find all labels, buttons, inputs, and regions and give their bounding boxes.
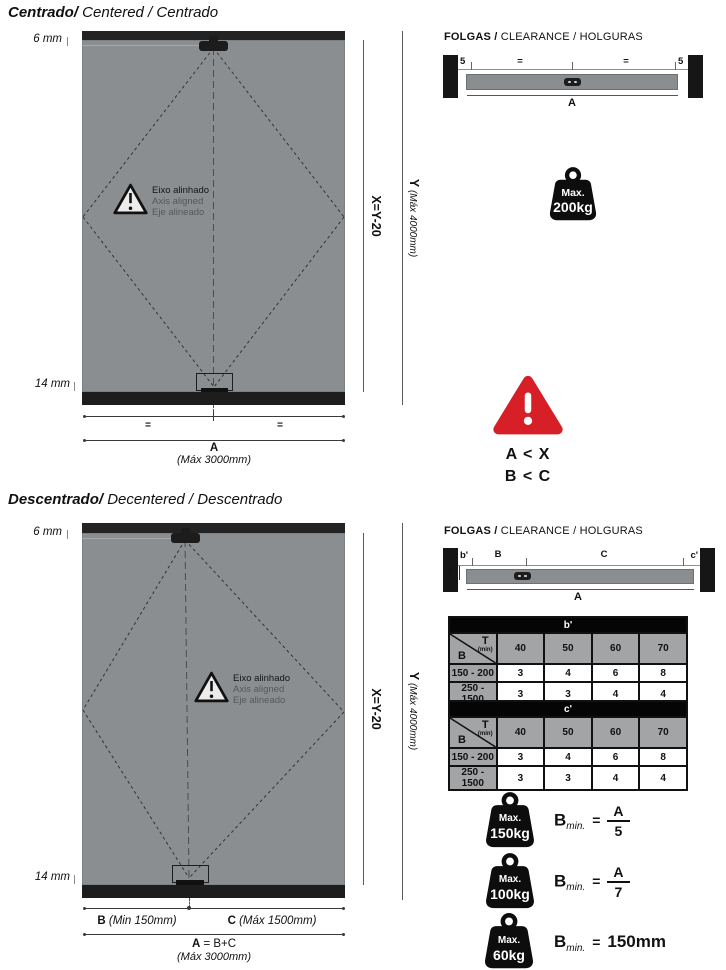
- equal-split-dim-line: [84, 416, 344, 417]
- table-b-col-3: 70: [639, 633, 687, 664]
- a-total-eq: = B+C: [200, 938, 236, 950]
- formula-row-60kg: Max. 60kg Bmin.=150mm: [480, 912, 726, 970]
- clearance-a-label-2: A: [548, 591, 608, 603]
- dim-y-note-2: (Máx 4000mm): [407, 680, 418, 750]
- table-c-corner: T (min) B: [449, 717, 497, 748]
- dim-y-note: (Máx 4000mm): [407, 187, 418, 257]
- table-b-col-2: 60: [592, 633, 640, 664]
- a-total-dim-line: [84, 934, 344, 935]
- b-prime-label: b': [460, 550, 468, 561]
- corner-min: (min): [478, 731, 493, 737]
- dim-x-line-2: [363, 533, 364, 885]
- cell: 3: [497, 766, 545, 790]
- width-a-dim-line: [84, 440, 344, 441]
- axis-note-pt: Eixo alinhado: [152, 185, 209, 196]
- b-seg-label: B: [483, 549, 513, 560]
- corner-t: T: [482, 635, 489, 647]
- top-gap-tick: [67, 37, 68, 46]
- clearance-a-label: A: [542, 97, 602, 109]
- cell: 4: [544, 664, 592, 682]
- fraction: A7: [607, 864, 629, 900]
- fraction-num: A: [607, 864, 629, 883]
- formula-result: 150mm: [607, 932, 666, 951]
- table-b-corner: T (min) B: [449, 633, 497, 664]
- axis-warning-icon-2: [193, 670, 230, 704]
- c-prime-label: c': [684, 550, 698, 561]
- b-prime-tick: [472, 558, 473, 566]
- table-c-col-2: 60: [592, 717, 640, 748]
- formula-eq: =: [592, 812, 600, 828]
- formula-eq: =: [592, 934, 600, 950]
- equal-left-label: =: [128, 420, 168, 431]
- dim-x-label-2: X=Y-20: [367, 688, 385, 729]
- door-bar-top-view-2: [466, 569, 694, 584]
- dim-y-line-2: [402, 523, 403, 900]
- clearance-top-line: [458, 69, 688, 70]
- table-c-title: c': [449, 701, 687, 717]
- gap-right-tick: [675, 62, 676, 70]
- max-weight-100-icon: Max. 100kg: [482, 853, 538, 911]
- section-title-centered: Centrado/ Centered / Centrado: [8, 4, 218, 21]
- table-c-col-1: 50: [544, 717, 592, 748]
- clearance-table-b-prime: b' T (min) B 40 50 60 70 150 - 200 3 4 6…: [448, 616, 688, 707]
- equal-right-label: =: [260, 420, 300, 431]
- left-jamb-block: [443, 55, 458, 98]
- clearance-top-line-2: [458, 565, 700, 566]
- formula-b: B: [554, 871, 566, 890]
- swing-diamond-lines: [82, 40, 345, 392]
- bottom-gap-tick-2: [74, 875, 75, 884]
- width-a-note: (Máx 3000mm): [114, 454, 314, 466]
- section-title-decentered: Descentrado/ Decentered / Descentrado: [8, 491, 282, 508]
- bc-split-dot: [187, 906, 191, 910]
- axis-note-decentered: Eixo alinhado Axis aligned Eje alineado: [233, 673, 290, 706]
- formula-bmin-150mm: Bmin.=150mm: [554, 932, 666, 952]
- max-weight-200-value: 200kg: [546, 199, 600, 215]
- equal-split-tick: [213, 411, 214, 421]
- formula-sub: min.: [566, 821, 585, 832]
- axis-note-en: Axis aligned: [152, 196, 209, 207]
- bc-tick: [526, 558, 527, 566]
- dim-b-label: B (Min 150mm): [77, 915, 197, 927]
- dim-x-text-2: X=Y-20: [369, 688, 383, 729]
- table-row: 150 - 200 3 4 6 8: [449, 748, 687, 766]
- max-weight-100-value: 100kg: [482, 886, 538, 902]
- clearance-center-tick: [572, 62, 573, 70]
- dim-c-label: C (Máx 1500mm): [212, 915, 332, 927]
- cell: 3: [497, 664, 545, 682]
- pivot-mechanism-icon: [199, 41, 228, 51]
- formula-sub: min.: [566, 943, 585, 954]
- axis-note-centered: Eixo alinhado Axis aligned Eje alineado: [152, 185, 209, 218]
- dim-x-label: X=Y-20: [367, 195, 385, 236]
- fraction-den: 7: [607, 883, 629, 900]
- door-panel-centered: [82, 40, 345, 392]
- row-label: 250 - 1500: [449, 766, 497, 790]
- table-c-col-3: 70: [639, 717, 687, 748]
- cell: 4: [592, 766, 640, 790]
- section-title-decentered-main: Descentrado/: [8, 491, 103, 508]
- c-seg-label: C: [589, 549, 619, 560]
- table-b-col-0: 40: [497, 633, 545, 664]
- door-panel-decentered: [82, 533, 345, 885]
- cell: 3: [544, 766, 592, 790]
- table-c-col-0: 40: [497, 717, 545, 748]
- section-title-decentered-rest: Decentered / Descentrado: [103, 491, 282, 508]
- a-total-note: (Máx 3000mm): [114, 951, 314, 963]
- a-total-letter: A: [192, 938, 200, 950]
- cell: 8: [639, 748, 687, 766]
- table-b-title: b': [449, 617, 687, 633]
- max-weight-60-icon: Max. 60kg: [480, 913, 538, 970]
- clearance-a-line-2: [467, 589, 694, 590]
- formula-b: B: [554, 810, 566, 829]
- fraction-den: 5: [607, 822, 629, 839]
- cell: 6: [592, 748, 640, 766]
- fraction: A5: [607, 803, 629, 839]
- cell: 4: [639, 766, 687, 790]
- right-jamb-block: [688, 55, 703, 98]
- fraction-num: A: [607, 803, 629, 822]
- dim-c-note: (Máx 1500mm): [236, 915, 317, 927]
- clearance-title-rest: CLEARANCE / HOLGURAS: [498, 31, 643, 43]
- clearance-title-centered: FOLGAS / CLEARANCE / HOLGURAS: [444, 31, 643, 43]
- t-tick: [459, 566, 460, 580]
- clearance-a-line: [467, 95, 678, 96]
- right-jamb-block-2: [700, 548, 715, 592]
- corner-min: (min): [478, 647, 493, 653]
- formula-row-150kg: Max. 150kg Bmin.=A5: [482, 791, 722, 851]
- table-row: 250 - 1500 3 3 4 4: [449, 766, 687, 790]
- formula-row-100kg: Max. 100kg Bmin.=A7: [482, 852, 722, 912]
- formula-b: B: [554, 932, 566, 951]
- dim-b-note: (Min 150mm): [106, 915, 177, 927]
- gap-right-label: 5: [678, 56, 683, 67]
- max-weight-150-value: 150kg: [482, 825, 538, 841]
- clearance-mechanism-icon-2: [514, 572, 531, 580]
- clearance-eq-right: =: [611, 56, 641, 67]
- bc-dim-line: [84, 908, 344, 909]
- clearance-mechanism-icon: [564, 78, 581, 86]
- formula-sub: min.: [566, 882, 585, 893]
- bottom-track-bar: [82, 392, 345, 405]
- table-b-col-1: 50: [544, 633, 592, 664]
- top-gap-label-2: 6 mm: [16, 526, 62, 538]
- dim-y-line: [402, 31, 403, 405]
- row-label: 150 - 200: [449, 748, 497, 766]
- page: Centrado/ Centered / Centrado 6 mm Eixo …: [0, 0, 726, 970]
- dim-c-letter: C: [228, 915, 236, 927]
- top-gap-tick-2: [67, 530, 68, 539]
- dim-y-label: Y (Máx 4000mm): [405, 179, 423, 257]
- warning-rule-1: A < X: [478, 446, 578, 464]
- axis-note-en-2: Axis aligned: [233, 684, 290, 695]
- corner-b: B: [458, 650, 466, 662]
- top-gap-label: 6 mm: [16, 33, 62, 45]
- cell: 6: [592, 664, 640, 682]
- top-track-bar-2: [82, 523, 345, 533]
- dim-y-label-2: Y (Máx 4000mm): [405, 672, 423, 750]
- dim-x-line: [363, 40, 364, 392]
- warning-triangle-icon: [492, 374, 564, 438]
- pivot-mechanism-icon-2: [171, 533, 200, 543]
- bottom-track-bar-2: [82, 885, 345, 898]
- axis-note-es: Eje alineado: [152, 207, 209, 218]
- c-prime-tick: [683, 558, 684, 566]
- max-weight-200-icon: Max. 200kg: [546, 166, 600, 224]
- table-row: 150 - 200 3 4 6 8: [449, 664, 687, 682]
- max-weight-150-label: Max.: [482, 813, 538, 824]
- max-weight-100-label: Max.: [482, 874, 538, 885]
- gap-left-label: 5: [460, 56, 465, 67]
- width-a-letter: A: [210, 442, 218, 454]
- clearance-eq-left: =: [505, 56, 535, 67]
- clearance-title-rest-2: CLEARANCE / HOLGURAS: [498, 525, 643, 537]
- warning-rule-2: B < C: [478, 468, 578, 486]
- bottom-gap-label-2: 14 mm: [16, 871, 70, 883]
- section-title-centered-main: Centrado/: [8, 4, 78, 21]
- axis-warning-icon: [112, 182, 149, 216]
- width-a-label: A: [114, 442, 314, 454]
- axis-note-pt-2: Eixo alinhado: [233, 673, 290, 684]
- cell: 4: [544, 748, 592, 766]
- dim-x-text: X=Y-20: [369, 195, 383, 236]
- clearance-title-main: FOLGAS /: [444, 31, 498, 43]
- gap-left-tick: [471, 62, 472, 70]
- corner-b: B: [458, 734, 466, 746]
- clearance-a-letter: A: [568, 97, 576, 109]
- formula-eq: =: [592, 873, 600, 889]
- a-total-label: A = B+C: [114, 938, 314, 950]
- row-label: 150 - 200: [449, 664, 497, 682]
- bottom-gap-tick: [74, 382, 75, 391]
- formula-bmin-a5: Bmin.=A5: [554, 803, 630, 839]
- swing-diamond-lines-2: [82, 533, 345, 885]
- dim-b-letter: B: [97, 915, 105, 927]
- section-title-centered-rest: Centered / Centrado: [78, 4, 218, 21]
- max-weight-150-icon: Max. 150kg: [482, 792, 538, 850]
- max-weight-60-label: Max.: [480, 935, 538, 946]
- clearance-title-decentered: FOLGAS / CLEARANCE / HOLGURAS: [444, 525, 643, 537]
- cell: 8: [639, 664, 687, 682]
- max-weight-200-label: Max.: [546, 187, 600, 199]
- t-label: T: [447, 567, 453, 578]
- panel-top-seam: [82, 45, 214, 46]
- axis-note-es-2: Eje alineado: [233, 695, 290, 706]
- clearance-table-c-prime: c' T (min) B 40 50 60 70 150 - 200 3 4 6…: [448, 700, 688, 791]
- corner-t: T: [482, 719, 489, 731]
- max-weight-60-value: 60kg: [480, 947, 538, 963]
- formula-bmin-a7: Bmin.=A7: [554, 864, 630, 900]
- bottom-gap-label: 14 mm: [16, 378, 70, 390]
- clearance-title-main-2: FOLGAS /: [444, 525, 498, 537]
- clearance-a-letter-2: A: [574, 591, 582, 603]
- cell: 3: [497, 748, 545, 766]
